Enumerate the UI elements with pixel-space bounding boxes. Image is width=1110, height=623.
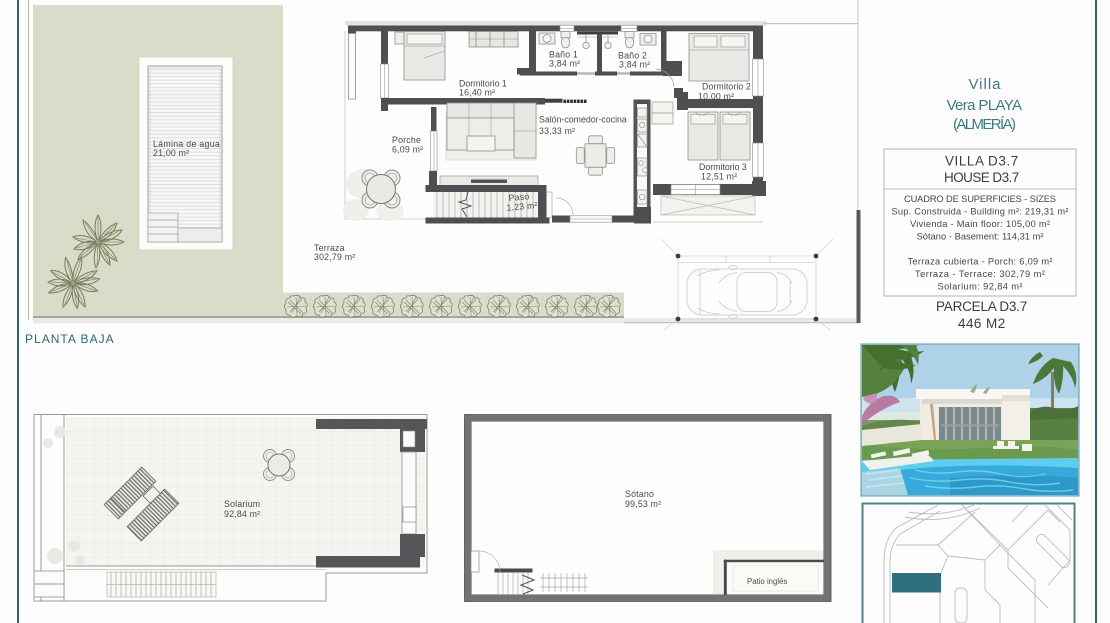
- svg-text:Salón-comedor-cocina: Salón-comedor-cocina: [539, 115, 627, 125]
- svg-text:Terraza cubierta - Porch: 6: Terraza cubierta - Porch: 6,09 m²: [908, 257, 1053, 267]
- svg-text:Patio inglés: Patio inglés: [747, 577, 787, 586]
- svg-text:446 M2: 446 M2: [958, 316, 1006, 331]
- svg-text:Porche: Porche: [392, 135, 421, 145]
- svg-text:3,84 m²: 3,84 m²: [619, 60, 650, 70]
- svg-text:VILLA D3.7: VILLA D3.7: [945, 154, 1019, 169]
- svg-text:10,00 m²: 10,00 m²: [698, 92, 734, 102]
- svg-text:Villa: Villa: [968, 76, 1001, 93]
- svg-text:PARCELA D3.7: PARCELA D3.7: [936, 299, 1028, 314]
- svg-text:Vera PLAYA: Vera PLAYA: [947, 97, 1024, 114]
- svg-text:99,53 m²: 99,53 m²: [625, 499, 661, 509]
- svg-text:PLANTA BAJA: PLANTA BAJA: [25, 332, 115, 346]
- svg-text:Sótano - Basement: 114,31 m: Sótano - Basement: 114,31 m²: [917, 232, 1044, 242]
- svg-text:(ALMERÍA): (ALMERÍA): [953, 116, 1017, 133]
- svg-text:Solarium: Solarium: [224, 499, 260, 509]
- svg-text:3,84 m²: 3,84 m²: [549, 59, 580, 69]
- svg-text:21,00 m²: 21,00 m²: [153, 148, 189, 158]
- svg-text:Dormitorio 3: Dormitorio 3: [699, 162, 747, 172]
- svg-text:Solarium: 92,84 m²: Solarium: 92,84 m²: [938, 282, 1023, 292]
- svg-text:33,33 m²: 33,33 m²: [539, 126, 575, 136]
- svg-text:CUADRO DE SUPERFICIES - SIZE: CUADRO DE SUPERFICIES - SIZES: [904, 194, 1056, 204]
- svg-text:6,09 m²: 6,09 m²: [392, 145, 423, 155]
- svg-text:Sótano: Sótano: [625, 489, 654, 499]
- svg-text:12,51 m²: 12,51 m²: [701, 172, 737, 182]
- svg-text:Vivienda - Main floor: 105,: Vivienda - Main floor: 105,00 m²: [910, 219, 1050, 229]
- svg-text:HOUSE D3.7: HOUSE D3.7: [944, 170, 1020, 185]
- svg-text:92,84 m²: 92,84 m²: [224, 509, 260, 519]
- svg-text:Dormitorio 2: Dormitorio 2: [702, 82, 751, 92]
- svg-text:16,40 m²: 16,40 m²: [459, 88, 495, 98]
- svg-text:Terraza - Terrace: 302,79 m: Terraza - Terrace: 302,79 m²: [915, 269, 1045, 279]
- svg-text:Sup. Construida - Building m: Sup. Construida - Building m²: 219,31 m²: [892, 207, 1069, 217]
- svg-text:302,79 m²: 302,79 m²: [314, 252, 355, 262]
